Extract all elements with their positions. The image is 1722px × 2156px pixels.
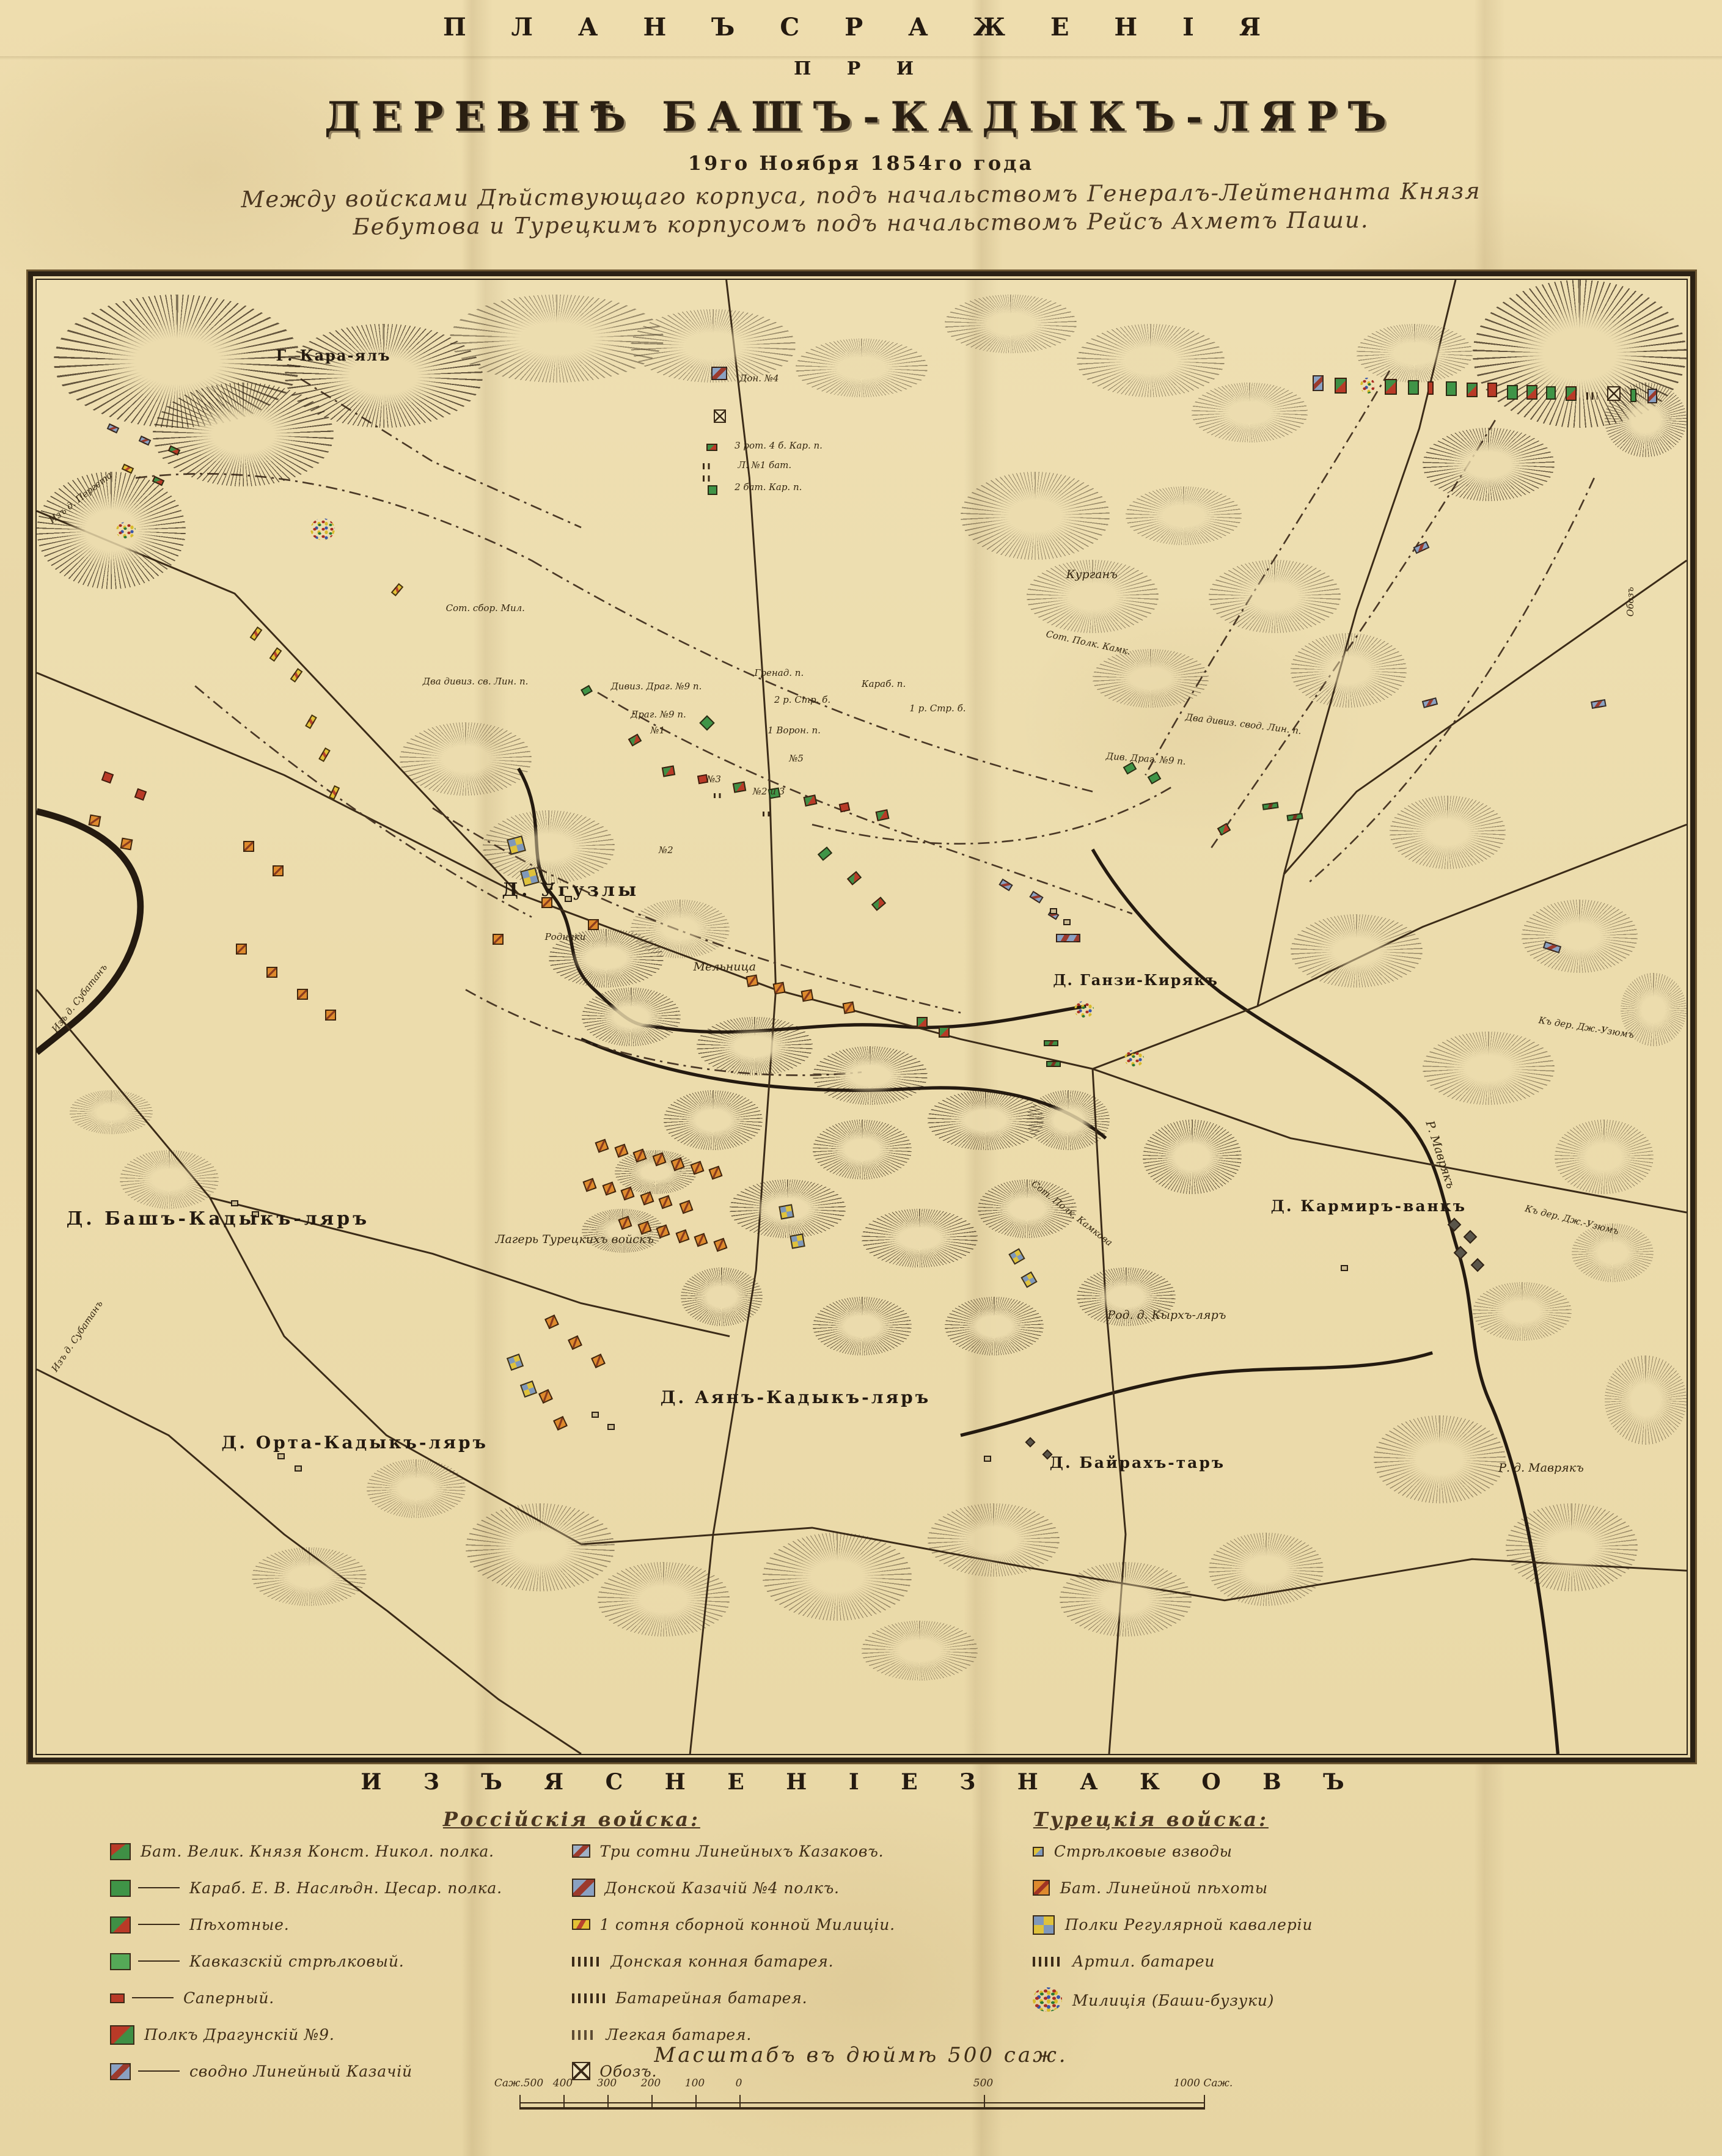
map-label: Д. Башъ-Кадыкъ-ляръ [67, 1207, 370, 1229]
hill-hachure [944, 1297, 1043, 1355]
road-path [1093, 1069, 1126, 1754]
unit-symbol-tin [266, 967, 277, 978]
scale-tick-label: 300 [597, 2078, 617, 2090]
unit-symbol-grn [708, 485, 718, 494]
unit-symbol-bsh [1360, 377, 1374, 393]
map-label: Д. Аянъ-Кадыкъ-ляръ [661, 1388, 931, 1408]
map-label: Сот. сбор. Мил. [446, 603, 525, 614]
unit-symbol-ru [706, 444, 717, 451]
unit-symbol-vil [232, 1200, 239, 1206]
hill-hachure [251, 1547, 367, 1606]
hill-hachure [1126, 486, 1241, 545]
map-label: №2 и 3 [753, 785, 785, 796]
map-label: 1 р. Стр. б. [909, 703, 965, 714]
hill-hachure [812, 1120, 911, 1179]
hill-hachure [961, 472, 1109, 560]
hill-hachure [1291, 914, 1423, 988]
scale-tick [563, 2095, 564, 2110]
legend-item: Полки Регулярной кавалеріи [1033, 1914, 1649, 1935]
unit-symbol-tin [120, 838, 133, 851]
hill-hachure [812, 1297, 911, 1355]
scale-tick-label: 1000 Саж. [1174, 2078, 1233, 2090]
hill-hachure [482, 810, 614, 884]
hill-hachure [1357, 324, 1472, 383]
scale-bar-block: Масштабъ въ дюймѣ 500 саж. Саж.500400300… [0, 2044, 1722, 2117]
legend-item: Легкая батарея. [571, 2024, 1033, 2045]
hill-hachure [944, 295, 1076, 353]
title-date: 19го Ноября 1854го года [0, 152, 1722, 175]
scale-bar: Саж.50040030020010005001000 Саж. [519, 2085, 1203, 2117]
unit-symbol-vil [294, 1465, 301, 1471]
legend-item-label: Кавказскій стрѣлковый. [189, 1952, 405, 1970]
legend-mil-icon [571, 1919, 590, 1930]
map-label: №3 [706, 774, 721, 785]
hill-hachure [1076, 324, 1225, 398]
hill-hachure [119, 1149, 218, 1208]
hill-hachure [37, 472, 185, 590]
map-canvas: Г. Кара-ялъИзъ д. ПергетаДон. №43 рот. 4… [37, 280, 1687, 1754]
map-label: Два дивиз. св. Лин. п. [423, 676, 529, 687]
movement-dash-path [136, 474, 532, 560]
unit-symbol-grn [1547, 386, 1556, 400]
unit-symbol-obz [1607, 386, 1621, 401]
legend-bat-icon [571, 1956, 601, 1966]
legend-item-label: Полки Регулярной кавалеріи [1065, 1915, 1313, 1934]
hill-hachure [763, 1533, 911, 1621]
map-sheet: П Л А Н Ъ С Р А Ж Е Н І Я П Р И ДЕРЕВНѢ … [0, 0, 1722, 2156]
legend-tsm-icon [1033, 1846, 1044, 1856]
legend-bat-icon [1033, 1956, 1063, 1966]
hill-hachure [1522, 899, 1637, 973]
scale-tick-label: 500 [973, 2078, 993, 2090]
unit-symbol-ru [1566, 386, 1577, 401]
unit-symbol-grn [1630, 389, 1636, 402]
unit-symbol-tin [746, 975, 758, 988]
unit-symbol-ru [661, 765, 675, 777]
legend-grn-icon [110, 1879, 131, 1896]
unit-symbol-rubar [1046, 1061, 1061, 1067]
legend-item-label: Донская конная батарея. [610, 1952, 834, 1970]
hill-hachure [928, 1091, 1043, 1149]
legend-item-label: Бат. Велик. Князя Конст. Никол. полка. [141, 1842, 494, 1860]
unit-symbol-bsh [116, 522, 136, 539]
unit-symbol-tin [492, 934, 503, 945]
unit-symbol-tin [273, 865, 284, 876]
legend-tca-icon [1033, 1915, 1055, 1934]
legend-ru-icon [110, 1916, 131, 1933]
legend-bat3-icon [571, 2030, 596, 2039]
scale-tick [519, 2095, 520, 2110]
hill-hachure [631, 899, 730, 958]
legend-grn2-icon [110, 1953, 131, 1970]
legend-item-label: Полкъ Драгунскій №9. [144, 2025, 335, 2044]
legend-item: Донской Казачій №4 полкъ. [571, 1877, 1033, 1898]
map-label: Мельница [694, 961, 757, 974]
hill-hachure [1291, 634, 1406, 708]
legend-item: Бат. Линейной пѣхоты [1033, 1877, 1649, 1898]
map-label: 3 рот. 4 б. Кар. п. [735, 441, 823, 452]
map-label: Д. Байрахъ-таръ [1050, 1453, 1225, 1472]
hill-hachure [1027, 1091, 1109, 1149]
hill-hachure [466, 1503, 614, 1592]
legend-tin2-icon [1033, 1880, 1050, 1896]
hill-hachure [1423, 427, 1555, 501]
hill-hachure [598, 1562, 730, 1636]
movement-dash-path [195, 686, 532, 917]
legend-item-label: Три сотни Линейныхъ Казаковъ. [599, 1842, 884, 1860]
map-label: 1 Ворон. п. [768, 725, 821, 736]
unit-symbol-bat [713, 793, 722, 798]
legend-item-label: Бат. Линейной пѣхоты [1060, 1879, 1268, 1897]
legend-item-label: Караб. Е. В. Наслѣдн. Цесар. полка. [189, 1879, 502, 1897]
unit-symbol-tin [236, 943, 247, 954]
hill-hachure [812, 1046, 928, 1105]
map-label: Родники [545, 931, 586, 942]
unit-symbol-ru [1385, 379, 1397, 395]
map-label: Обозъ [1625, 587, 1636, 617]
unit-symbol-grn [1408, 380, 1419, 395]
hill-hachure [1472, 1282, 1571, 1341]
legend-dash [138, 1887, 180, 1888]
hill-hachure [1093, 648, 1208, 707]
legend-item: Бат. Велик. Князя Конст. Никол. полка. [110, 1841, 571, 1861]
unit-symbol-vil [591, 1412, 598, 1418]
legend-item: Батарейная батарея. [571, 1987, 1033, 2008]
hill-hachure [862, 1621, 977, 1680]
title-line-1: П Л А Н Ъ С Р А Ж Е Н І Я [0, 0, 1722, 42]
unit-symbol-ru [939, 1027, 950, 1038]
unit-symbol-cos [1647, 389, 1657, 403]
legend-drag-icon [110, 2025, 134, 2044]
unit-symbol-tin [326, 1010, 337, 1021]
hill-hachure [1208, 1533, 1324, 1607]
unit-symbol-bat [1586, 392, 1597, 399]
hill-hachure [1390, 796, 1505, 870]
scale-line [519, 2102, 1203, 2110]
legend-dash [138, 1924, 180, 1925]
map-label: №2 [659, 845, 673, 856]
hill-hachure [1555, 1120, 1654, 1194]
unit-symbol-red2 [1427, 381, 1434, 395]
legend-item: Донская конная батарея. [571, 1951, 1033, 1971]
unit-symbol-bsh [1124, 1049, 1143, 1066]
scale-caption: Масштабъ въ дюймѣ 500 саж. [0, 2044, 1722, 2068]
map-linework [37, 280, 1687, 1754]
hill-hachure [680, 1267, 763, 1326]
legend-item-label: Пѣхотные. [189, 1915, 290, 1934]
unit-symbol-rubar [1043, 1041, 1058, 1047]
unit-symbol-tin [298, 989, 309, 1000]
hill-hachure [581, 988, 680, 1046]
legend-item: Полкъ Драгунскій №9. [110, 2024, 571, 2045]
legend-item-label: Милиція (Баши-бузуки) [1072, 1990, 1274, 2009]
legend-item-label: Легкая батарея. [606, 2025, 752, 2044]
scale-tick-label: Саж.500 [494, 2078, 543, 2090]
map-label: №5 [789, 753, 804, 764]
map-label: №1 [650, 725, 665, 736]
legend-dash [132, 1997, 174, 1998]
legend-dash [138, 1960, 180, 1962]
hill-hachure [367, 1459, 466, 1518]
movement-dash-path [532, 560, 1093, 791]
legend-item-label: Донской Казачій №4 полкъ. [604, 1879, 839, 1897]
unit-symbol-vil [1050, 908, 1057, 914]
unit-symbol-bat [703, 476, 713, 482]
river-path [961, 1353, 1432, 1436]
hill-hachure [1060, 1562, 1192, 1636]
legend-turkish-header: Турецкія войска: [1033, 1808, 1649, 1831]
legend-bat2-icon [571, 1993, 606, 2003]
legend-item: Кавказскій стрѣлковый. [110, 1951, 571, 1971]
hill-hachure [697, 1017, 812, 1076]
map-label: 2 бат. Кар. п. [735, 482, 802, 493]
unit-symbol-obz [713, 409, 725, 423]
map-label: Дивиз. Драг. №9 п. [611, 681, 702, 692]
map-label: Д. Орта-Кадыкъ-ляръ [221, 1434, 488, 1454]
hill-hachure [400, 722, 532, 796]
unit-symbol-vil [1063, 920, 1070, 926]
hill-hachure [70, 1091, 152, 1135]
map-label: Караб. п. [862, 678, 906, 689]
hill-hachure [1142, 1120, 1241, 1194]
map-label: Дон. №4 [739, 373, 779, 384]
legend-item-label: Стрѣлковые взводы [1054, 1842, 1233, 1860]
movement-dash-path [812, 785, 1175, 844]
hill-hachure [928, 1503, 1060, 1577]
map-label: Г. Кара-ялъ [276, 348, 391, 365]
legend-cos1-icon [571, 1844, 590, 1858]
hill-hachure [1604, 1356, 1687, 1445]
scale-tick [983, 2095, 984, 2110]
map-label: Д. Угузлы [502, 878, 639, 900]
title-line-2: П Р И [0, 57, 1722, 79]
legend-item-label: Саперный. [183, 1989, 274, 2007]
unit-symbol-tin [843, 1001, 856, 1014]
legend-header: И З Ъ Я С Н Е Н І Е З Н А К О В Ъ [0, 1770, 1722, 1795]
map-label: Курганъ [1066, 569, 1118, 582]
hill-hachure [862, 1209, 977, 1267]
legend-item: Пѣхотные. [110, 1914, 571, 1935]
movement-dash-path [598, 692, 1132, 914]
legend-item: Саперный. [110, 1987, 571, 2008]
hill-hachure [664, 1091, 763, 1149]
hill-hachure [1192, 383, 1307, 442]
unit-symbol-tin [243, 842, 254, 853]
road-path [1258, 874, 1284, 1006]
scale-tick [607, 2095, 608, 2110]
unit-symbol-ru [1526, 384, 1537, 399]
legend-item: 1 сотня сборной конной Милиціи. [571, 1914, 1033, 1935]
unit-symbol-grn [1507, 384, 1518, 399]
unit-symbol-ru [916, 1017, 927, 1028]
title-block: П Л А Н Ъ С Р А Ж Е Н І Я П Р И ДЕРЕВНѢ … [0, 0, 1722, 237]
legend-cos2-icon [571, 1879, 595, 1897]
hill-hachure [1373, 1415, 1505, 1503]
map-label: Д. Кармиръ-ванкъ [1271, 1197, 1467, 1215]
legend-item: Милиція (Баши-бузуки) [1033, 1987, 1649, 2012]
legend-item-label: Артил. батареи [1072, 1952, 1215, 1970]
scale-tick-label: 100 [685, 2078, 705, 2090]
map-label: Р. д. Маврякъ [1498, 1462, 1584, 1475]
unit-symbol-ru [1467, 383, 1478, 398]
legend-item: Артил. батареи [1033, 1951, 1649, 1971]
unit-symbol-vil [607, 1424, 615, 1430]
unit-symbol-bat [703, 463, 713, 469]
legend-item-label: Батарейная батарея. [615, 1989, 807, 2007]
map-label: 2 р. Стр. б. [774, 694, 830, 705]
hill-hachure [1423, 1032, 1555, 1105]
scale-tick [651, 2095, 652, 2110]
legend-russian-header: Россійскія войска: [110, 1808, 1033, 1831]
scale-tick-label: 200 [641, 2078, 661, 2090]
map-label: Гренад. п. [755, 667, 804, 678]
title-line-3: ДЕРЕВНѢ БАШЪ-КАДЫКЪ-ЛЯРЪ [0, 93, 1722, 141]
unit-symbol-ru [1335, 377, 1347, 393]
unit-symbol-cos [1312, 376, 1323, 392]
unit-symbol-tin [89, 814, 101, 827]
hill-hachure [1505, 1503, 1637, 1592]
map-label: Д. Ганзи-Кирякъ [1053, 971, 1218, 988]
legend-ru1-icon [110, 1843, 131, 1860]
unit-symbol-tca [778, 1204, 793, 1220]
map-label: Лагерь Турецкихъ войскъ [496, 1234, 654, 1247]
unit-symbol-cosbar [1057, 934, 1081, 943]
legend-turkish-column: Стрѣлковые взводыБат. Линейной пѣхотыПол… [1033, 1841, 1649, 2012]
scale-tick-label: 400 [553, 2078, 573, 2090]
legend-item: Стрѣлковые взводы [1033, 1841, 1649, 1861]
map-label: Род. д. Кырхъ-ляръ [1107, 1309, 1226, 1322]
road-path [37, 989, 581, 1544]
scale-tick [1203, 2095, 1204, 2110]
hill-hachure [1208, 560, 1340, 634]
unit-symbol-vil [1340, 1264, 1347, 1270]
legend-bsh-icon [1033, 1987, 1063, 2012]
unit-symbol-vil [277, 1453, 285, 1459]
map-label: Драг. №9 п. [631, 709, 686, 720]
unit-symbol-grn [1446, 381, 1457, 396]
unit-symbol-vil [984, 1456, 991, 1462]
legend-item-label: 1 сотня сборной конной Милиціи. [599, 1915, 895, 1934]
legend-item: Караб. Е. В. Наслѣдн. Цесар. полка. [110, 1877, 571, 1898]
scale-tick [739, 2095, 740, 2110]
legend-sap-icon [110, 1993, 125, 2003]
unit-symbol-bat [763, 812, 771, 817]
unit-symbol-tin [588, 920, 599, 931]
unit-symbol-red2 [1487, 383, 1497, 398]
map-label: Л. №1 бат. [738, 460, 792, 471]
legend-item: Три сотни Линейныхъ Казаковъ. [571, 1841, 1033, 1861]
unit-symbol-bsh [1074, 1000, 1094, 1018]
unit-symbol-cos [711, 367, 727, 380]
scale-tick-label: 0 [736, 2078, 742, 2090]
scale-tick [695, 2095, 696, 2110]
